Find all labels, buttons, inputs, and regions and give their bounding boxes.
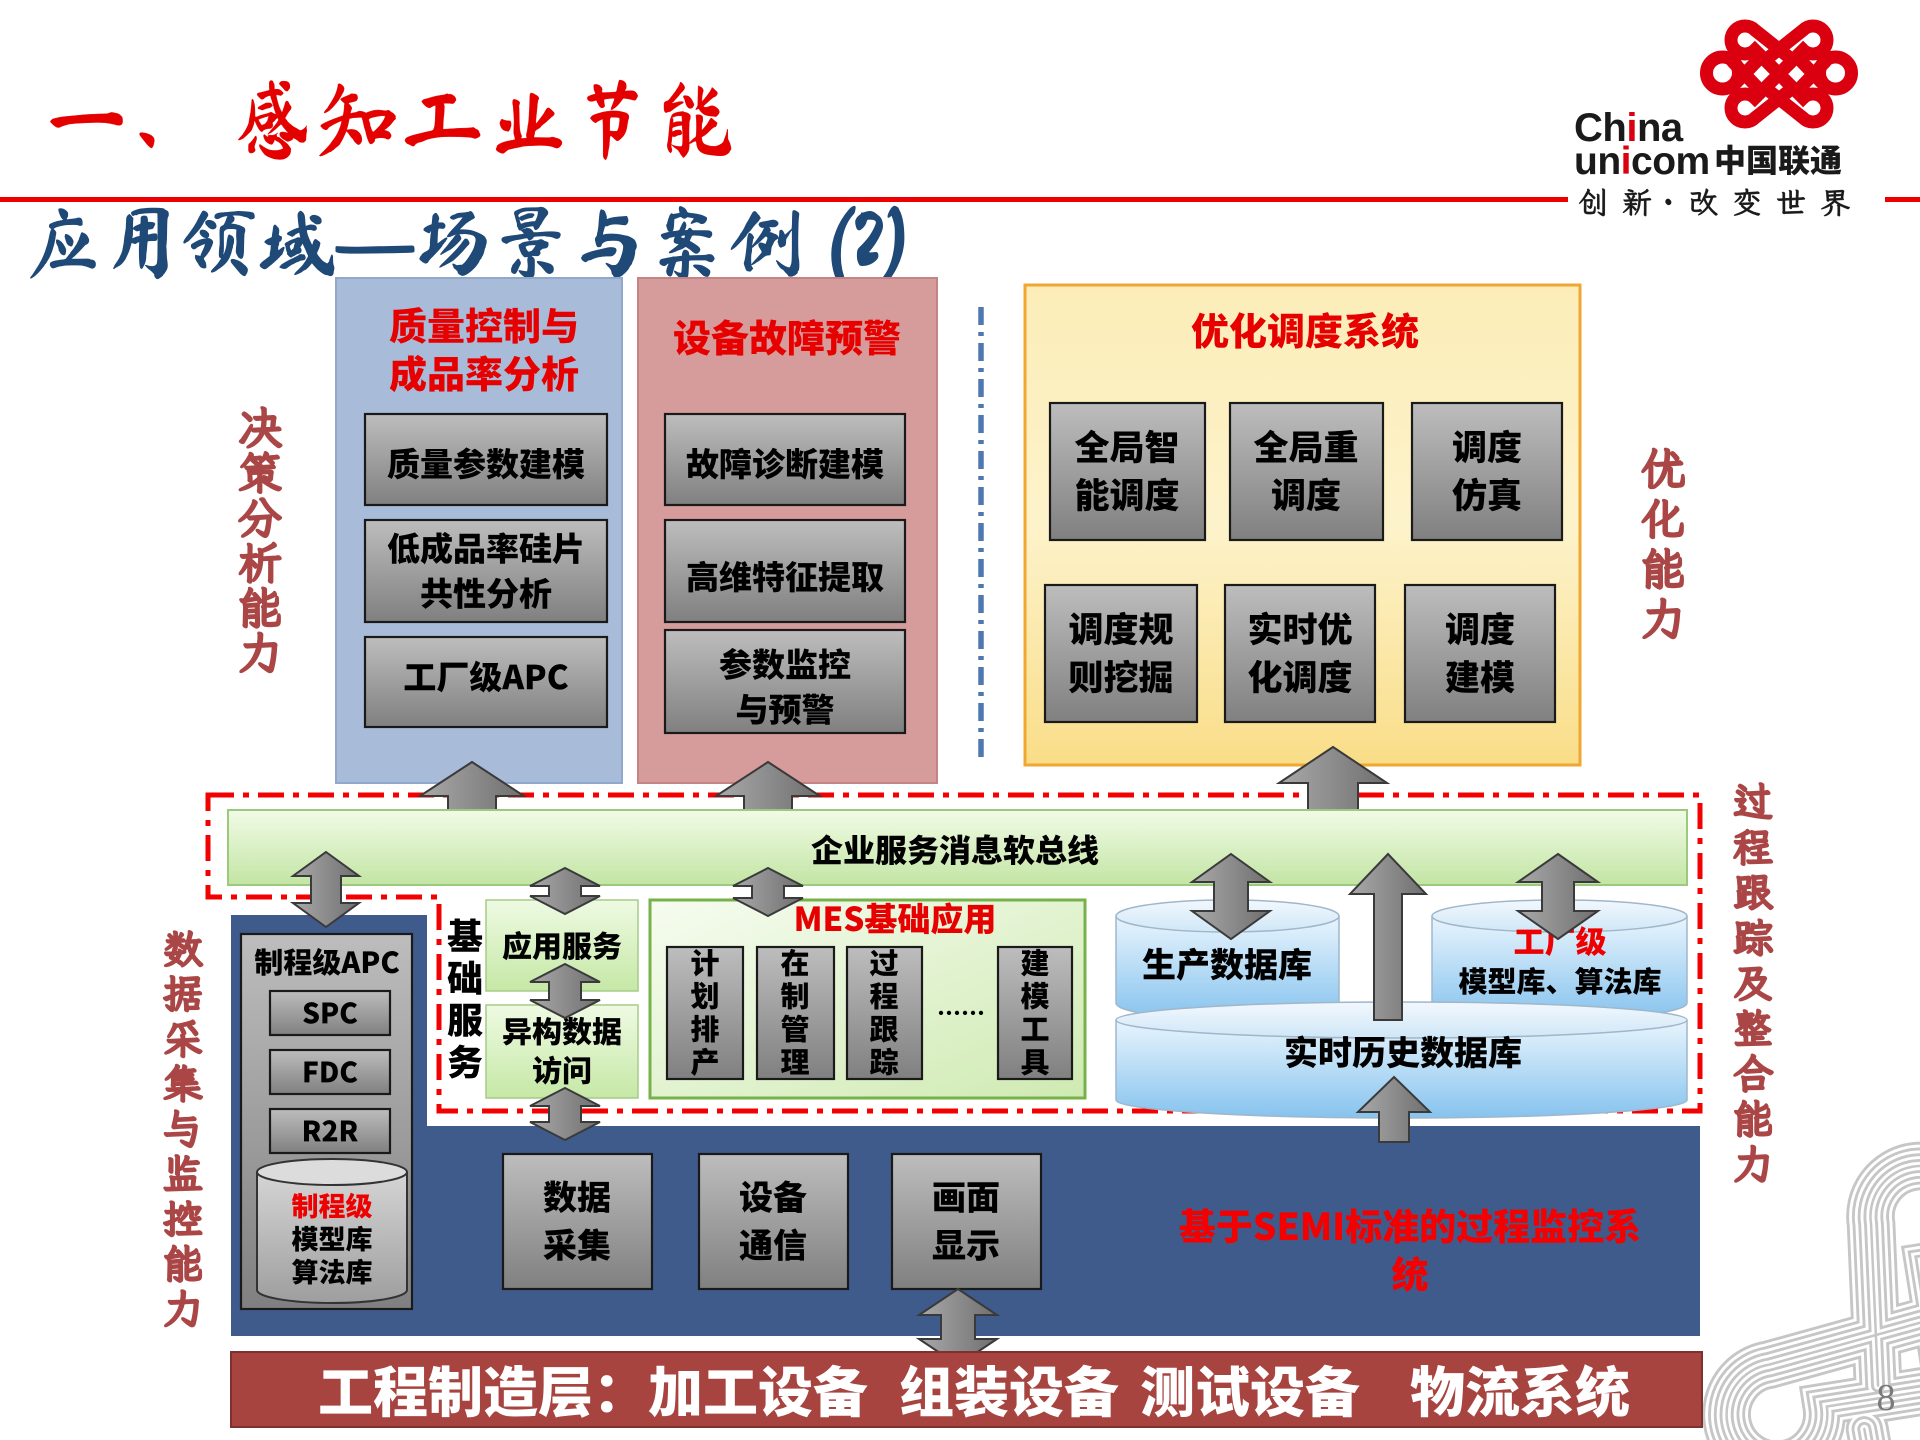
svg-text:unicom: unicom — [1574, 140, 1710, 183]
svg-text:8: 8 — [1877, 1377, 1896, 1419]
